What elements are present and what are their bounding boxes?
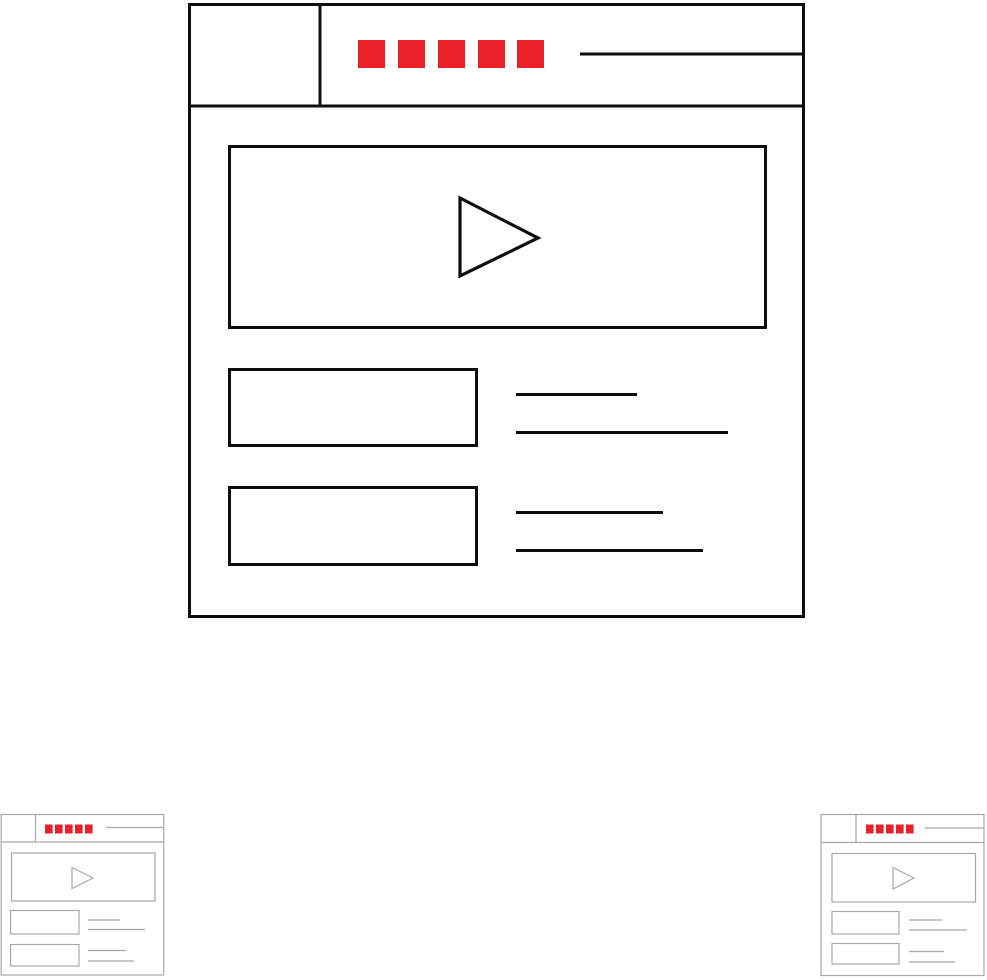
video-player-browser-icon-set (0, 0, 987, 980)
menu-square (55, 825, 63, 834)
menu-square (866, 825, 874, 834)
play-icon (460, 198, 538, 276)
menu-squares-icon (45, 825, 93, 834)
menu-square (906, 825, 914, 834)
menu-square (478, 40, 505, 68)
video-frame (12, 853, 156, 901)
icon-video-player-browser-large (188, 4, 805, 617)
browser-window-outline (1, 815, 164, 976)
icon-video-player-browser-small-left (1, 815, 164, 976)
menu-square (45, 825, 53, 834)
content-box-1 (230, 370, 477, 446)
menu-square (75, 825, 83, 834)
menu-square (438, 40, 465, 68)
icon-set-canvas (0, 0, 987, 980)
video-frame (832, 854, 976, 903)
menu-square (876, 825, 884, 834)
menu-squares-icon (358, 40, 544, 68)
video-frame (230, 147, 766, 328)
browser-window-outline (190, 5, 804, 617)
menu-square (358, 40, 385, 68)
menu-square (398, 40, 425, 68)
menu-square (517, 40, 544, 68)
browser-window-outline (821, 815, 984, 976)
menu-square (896, 825, 904, 834)
menu-square (65, 825, 73, 834)
menu-square (886, 825, 894, 834)
content-box-2 (11, 945, 80, 967)
content-box-2 (832, 944, 899, 965)
play-icon (72, 868, 93, 889)
icon-video-player-browser-small-right (821, 815, 984, 976)
play-icon (893, 868, 914, 890)
menu-squares-icon (866, 825, 914, 834)
menu-square (85, 825, 93, 834)
content-box-1 (11, 911, 80, 935)
content-box-2 (230, 488, 477, 565)
content-box-1 (832, 912, 899, 935)
